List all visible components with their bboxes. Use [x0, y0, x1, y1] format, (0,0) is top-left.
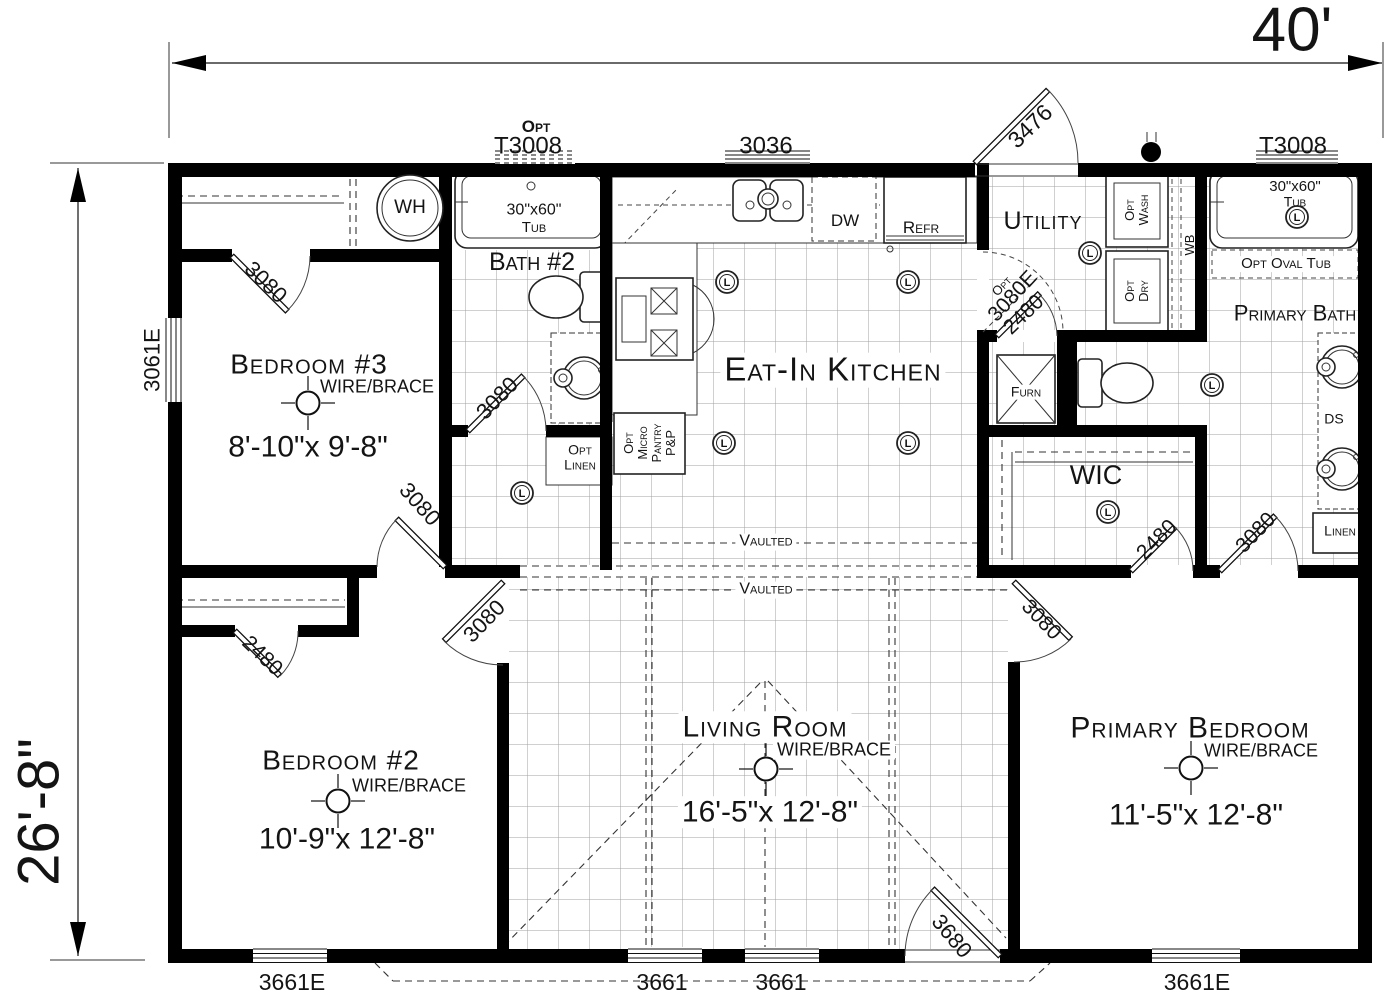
size-label-bedroom3: 8'-10"x 9'-8" — [228, 431, 388, 463]
workbench-label: WB — [1183, 235, 1197, 256]
opt-oval-tub-label: Opt Oval Tub — [1237, 256, 1335, 272]
vaulted-label-kitchen: Vaulted — [735, 534, 796, 551]
opt-linen-label: OptLinen — [564, 442, 596, 471]
light-icon: L — [716, 271, 738, 293]
dryer-label: OptDry — [1123, 280, 1151, 302]
porch-outline — [375, 963, 1050, 981]
room-label-bedroom3: Bedroom #3 — [230, 349, 388, 378]
light-icon: L — [1079, 242, 1101, 264]
room-label-kitchen: Eat-In Kitchen — [720, 353, 945, 388]
light-icon: L — [897, 432, 919, 454]
window-label-bedroom3: 3061E — [140, 328, 163, 392]
room-label-bath2: Bath #2 — [489, 249, 575, 275]
size-label-bedroom2: 10'-9"x 12'-8" — [259, 823, 435, 855]
svg-text:L: L — [905, 277, 912, 289]
light-icon: L — [511, 482, 533, 504]
light-icon: L — [897, 271, 919, 293]
tub-word-label-primary: Tub — [1284, 195, 1306, 210]
door-bedroom3 — [377, 517, 447, 569]
pantry-label: OptMicro PantryP&P — [622, 423, 678, 462]
light-icon: L — [1097, 501, 1119, 523]
svg-text:L: L — [1209, 380, 1216, 392]
svg-text:L: L — [1105, 507, 1112, 519]
floor-plan: L L L L L L L L L 40' 26'-8" Opt T3008 3… — [0, 0, 1400, 999]
bath2-toilet — [529, 272, 608, 322]
wire-brace-label-bedroom3: WIRE/BRACE — [320, 378, 434, 397]
window-label-living-left: 3661 — [636, 970, 687, 994]
furnace-label: Furn — [1010, 385, 1042, 400]
size-label-living: 16'-5"x 12'-8" — [678, 796, 862, 828]
size-label-primary-bedroom: 11'-5"x 12'-8" — [1109, 799, 1283, 831]
wire-brace-label-bedroom2: WIRE/BRACE — [352, 777, 466, 796]
room-label-wic: WIC — [1070, 461, 1122, 489]
room-label-utility: Utility — [1003, 208, 1082, 234]
room-label-primary-bath: Primary Bath — [1234, 301, 1356, 324]
linen-label: Linen — [1324, 524, 1356, 539]
window-bedroom3-left — [164, 318, 185, 402]
floor-plan-canvas: L L L L L L L L L — [0, 0, 1400, 999]
light-icon: L — [713, 432, 735, 454]
window-label-primary-bedroom: 3661E — [1164, 970, 1231, 994]
tub-size-label-bath2: 30"x60" — [507, 203, 562, 220]
window-label-primary-bath: T3008 — [1259, 133, 1327, 158]
svg-text:L: L — [1087, 248, 1094, 260]
room-label-bedroom2: Bedroom #2 — [262, 745, 420, 774]
window-bedroom2-bottom — [253, 947, 327, 965]
window-label-kitchen: 3036 — [739, 133, 792, 158]
dishwasher-label: DW — [831, 212, 859, 230]
tub-size-label-primary: 30"x60" — [1269, 179, 1321, 195]
svg-text:L: L — [519, 488, 526, 500]
overall-width-dimension: 40' — [1252, 0, 1333, 63]
primary-toilet — [1078, 359, 1153, 407]
tub-word-label-bath2: Tub — [522, 220, 546, 236]
window-living-bottom-right — [745, 947, 819, 965]
room-label-primary-bedroom: Primary Bedroom — [1070, 712, 1309, 744]
overall-height-dimension: 26'-8" — [10, 738, 71, 886]
window-primary-bedroom-bottom — [1152, 947, 1240, 965]
svg-text:L: L — [721, 438, 728, 450]
dishwasher — [812, 177, 876, 241]
room-label-living: Living Room — [678, 711, 851, 743]
dryer-vent-icon — [1141, 132, 1161, 162]
double-sink-label: DS — [1324, 412, 1343, 427]
window-living-bottom-left — [628, 947, 702, 965]
light-icon: L — [1201, 374, 1223, 396]
svg-text:L: L — [905, 438, 912, 450]
wire-brace-label-primary-bedroom: WIRE/BRACE — [1204, 742, 1318, 761]
vaulted-label-living: Vaulted — [735, 582, 796, 599]
svg-text:L: L — [1294, 212, 1301, 224]
window-label-living-right: 3661 — [755, 970, 806, 994]
window-label-bedroom2: 3661E — [259, 970, 326, 994]
wire-brace-label-living: WIRE/BRACE — [773, 741, 895, 760]
window-label-bath2: T3008 — [494, 133, 562, 158]
washer-label: OptWash — [1123, 195, 1151, 226]
refrigerator — [884, 177, 966, 252]
refrigerator-label: Refr — [903, 219, 939, 237]
water-heater-label: WH — [394, 198, 426, 218]
svg-text:L: L — [724, 277, 731, 289]
